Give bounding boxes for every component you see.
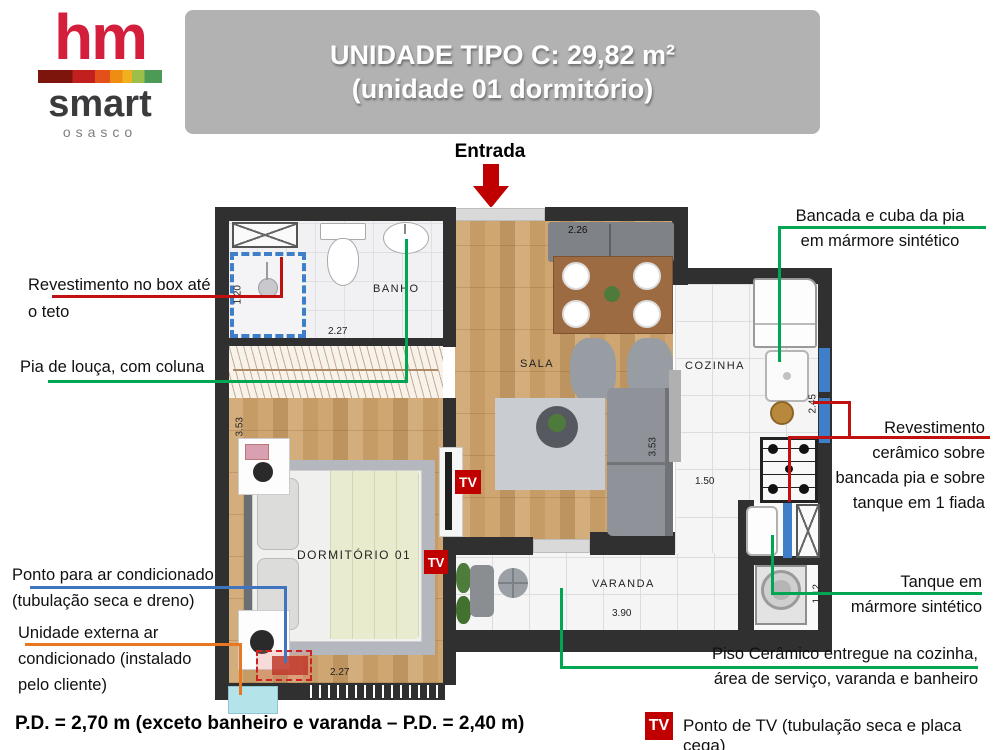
wall-sala-varanda-a xyxy=(443,537,533,555)
fridge xyxy=(753,278,817,348)
cozinha-window xyxy=(819,348,830,392)
annotation-line: Revestimento xyxy=(815,418,985,439)
entrada-label: Entrada xyxy=(430,141,550,163)
annotation-line: Ponto para ar condicionado xyxy=(12,565,232,586)
plate-1 xyxy=(562,262,590,290)
leader-bancada-v xyxy=(778,226,781,362)
wall-banho-right xyxy=(443,207,456,347)
tv-screen-icon xyxy=(445,452,452,530)
varanda-plant-1 xyxy=(456,563,471,593)
annotation-bancada: Bancada e cuba da pia em mármore sintéti… xyxy=(790,206,970,252)
table-plant-icon xyxy=(604,286,620,302)
annotation-line: em mármore sintético xyxy=(790,231,970,252)
shaft-banho xyxy=(232,222,298,248)
dim-varanda-width: 3.90 xyxy=(612,608,631,619)
tv-point-sala-label: TV xyxy=(459,474,477,490)
annotation-line: cerâmico sobre xyxy=(815,443,985,464)
washing-machine-drum-inner xyxy=(771,580,791,600)
plate-3 xyxy=(562,300,590,328)
annotation-line: bancada pia e sobre xyxy=(815,468,985,489)
floorplan-slide: hm smart osasco UNIDADE TIPO C: 29,82 m²… xyxy=(0,0,1000,750)
leader-tanque-v xyxy=(771,535,774,595)
leader-unidade-ext-v xyxy=(239,643,242,695)
fridge-divider xyxy=(755,323,815,325)
plate-2 xyxy=(633,262,661,290)
tv-point-sala: TV xyxy=(455,470,481,494)
dim-cozinha-width: 1.50 xyxy=(695,476,714,487)
varanda-glass-door xyxy=(533,539,590,553)
ac-point-fill xyxy=(272,656,308,675)
leader-revest-cer-h2 xyxy=(813,401,851,404)
annotation-revest-cer: Revestimento cerâmico sobre bancada pia … xyxy=(815,418,985,514)
cozinha-label: COZINHA xyxy=(685,360,745,372)
dim-dorm-width: 2.27 xyxy=(330,667,349,678)
dorm-window-grille xyxy=(310,685,443,698)
tv-point-dorm-label: TV xyxy=(428,555,445,570)
leader-revest-cer-v2 xyxy=(788,436,791,502)
dormitorio-label: DORMITÓRIO 01 xyxy=(297,548,411,562)
wall-top-sala xyxy=(545,207,673,221)
shower-arm xyxy=(266,262,268,280)
leader-pia-h xyxy=(48,380,408,383)
leader-pia-v xyxy=(405,239,408,383)
dim-dorm-height: 3.53 xyxy=(235,405,246,437)
annotation-rev-box: Revestimento no box até o teto xyxy=(28,275,228,323)
fruit-bowl-icon xyxy=(770,401,794,425)
cozinha-passage-floor xyxy=(675,505,740,555)
sala-label: SALA xyxy=(520,358,554,370)
banner-line2: (unidade 01 dormitório) xyxy=(352,72,654,106)
leader-piso-v xyxy=(560,588,563,669)
annotation-pia: Pia de louça, com coluna xyxy=(20,357,230,378)
entrada-arrow-icon xyxy=(473,164,509,208)
dim-shower-height: 1.20 xyxy=(233,273,244,305)
varanda-table xyxy=(470,565,494,617)
annotation-line: pelo cliente) xyxy=(18,675,228,696)
dining-bench-split xyxy=(609,224,611,260)
stove-burner-4 xyxy=(799,484,809,494)
banner-line1: UNIDADE TIPO C: 29,82 m² xyxy=(330,38,675,72)
ac-external-unit xyxy=(228,686,278,714)
logo-smart-text: smart xyxy=(30,86,170,122)
entrance-sill xyxy=(455,208,545,221)
wall-top-banho xyxy=(215,207,455,221)
annotation-piso: Piso Cerâmico entregue na cozinha, área … xyxy=(690,644,978,690)
annotation-line: (tubulação seca e dreno) xyxy=(12,591,232,612)
annotation-line: Tanque em xyxy=(810,572,982,593)
annotation-line: condicionado (instalado xyxy=(18,649,228,670)
dim-cozinha-height: 2.45 xyxy=(808,382,819,414)
stove-burner-3 xyxy=(768,484,778,494)
nightstand-top-lamp-icon xyxy=(253,462,273,482)
annotation-line: Piso Cerâmico entregue na cozinha, xyxy=(690,644,978,665)
servico-window xyxy=(783,503,792,558)
annotation-line: Revestimento no box até xyxy=(28,275,228,296)
leader-rev-box-v xyxy=(280,257,283,298)
annotation-line: mármore sintético xyxy=(810,597,982,618)
logo-hm-text: hm xyxy=(30,6,170,68)
annotation-line: o teto xyxy=(28,302,228,323)
varanda-floor xyxy=(455,553,740,632)
stove-burner-2 xyxy=(799,444,809,454)
dim-banho-width: 2.27 xyxy=(328,326,347,337)
nightstand-top-books xyxy=(245,444,269,460)
varanda-pouf-icon xyxy=(498,568,528,598)
annotation-line: área de serviço, varanda e banheiro xyxy=(690,669,978,690)
title-banner: UNIDADE TIPO C: 29,82 m² (unidade 01 dor… xyxy=(185,10,820,134)
annotation-tanque: Tanque em mármore sintético xyxy=(810,572,982,618)
logo-city-text: osasco xyxy=(30,124,170,140)
toilet-bowl-icon xyxy=(327,238,359,286)
plate-4 xyxy=(633,300,661,328)
varanda-label: VARANDA xyxy=(592,578,655,590)
pd-note: P.D. = 2,70 m (exceto banheiro e varanda… xyxy=(15,713,524,735)
annotation-ponto-ac: Ponto para ar condicionado (tubulação se… xyxy=(12,565,232,612)
tv-legend-text: Ponto de TV (tubulação seca e placa cega… xyxy=(683,716,1000,750)
dim-sala-height: 3.53 xyxy=(648,425,659,457)
varanda-plant-2 xyxy=(456,596,471,624)
annotation-line: tanque em 1 fiada xyxy=(815,493,985,514)
tv-legend-badge: TV xyxy=(645,712,673,740)
wall-banho-bottom xyxy=(228,338,444,346)
annotation-line: Unidade externa ar xyxy=(18,623,228,644)
annotation-unidade-ext: Unidade externa ar condicionado (instala… xyxy=(18,623,228,696)
annotation-line: Bancada e cuba da pia xyxy=(790,206,970,227)
banho-sink-tap xyxy=(404,224,406,234)
coffee-table-plant xyxy=(548,414,566,432)
tv-legend-badge-label: TV xyxy=(649,717,669,735)
hm-smart-logo: hm smart osasco xyxy=(30,6,170,140)
tv-point-dorm: TV xyxy=(424,550,448,574)
annotation-line: Pia de louça, com coluna xyxy=(20,357,230,378)
leader-ponto-ac-v xyxy=(284,586,287,663)
sofa xyxy=(607,388,673,536)
banho-label: BANHO xyxy=(373,283,420,295)
kitchen-counter-strip xyxy=(669,370,681,462)
closet-hangers xyxy=(228,346,443,398)
kitchen-sink-drain xyxy=(783,372,791,380)
stove-burner-1 xyxy=(768,444,778,454)
dim-sala-top: 2.26 xyxy=(568,225,587,236)
